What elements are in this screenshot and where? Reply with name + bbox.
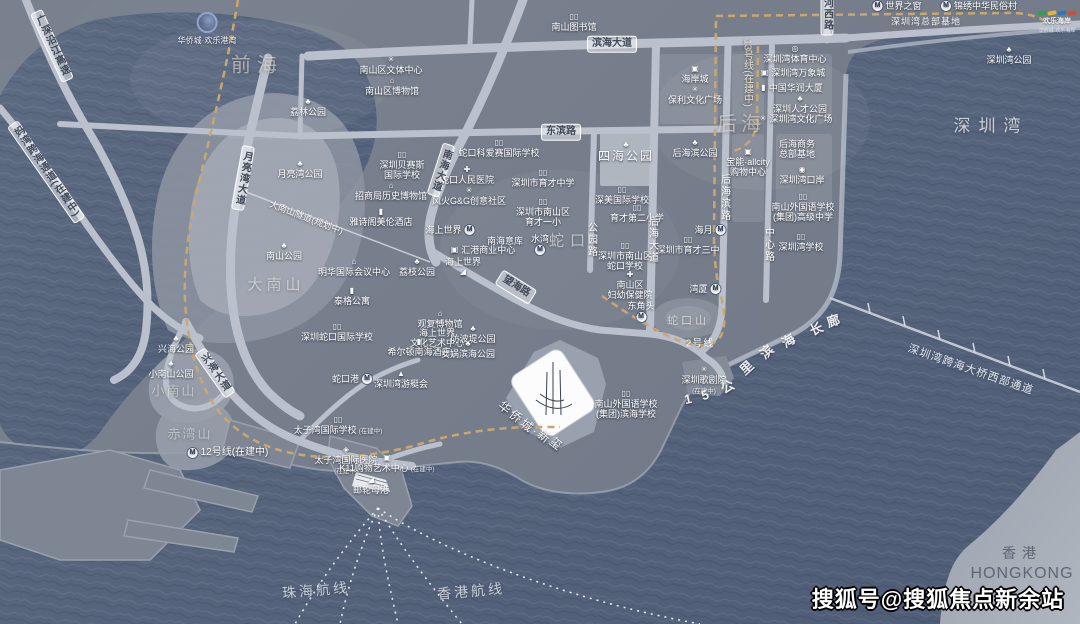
poi-text: 深圳人才公园 [773, 104, 827, 114]
school-icon: ▯▯ [334, 416, 343, 424]
map-poi: ✚南山区妇幼保健院 [607, 271, 652, 301]
oct-harbour-title: 欢乐海岸 [1043, 16, 1071, 26]
area-label: 蛇口 [549, 230, 591, 251]
museum-icon: ⌂ [438, 310, 443, 318]
poi-text: 汇港商业中心 [461, 245, 515, 255]
map-poi: ▯▯南山图书馆 [551, 13, 596, 32]
poi-text: 南山外国语学校(集团)滨海学校 [594, 399, 657, 420]
map-poi: ▯▯深圳市南山区育才一小 [516, 198, 570, 228]
promenade-label-char: 滨 [755, 340, 777, 363]
tower-icon: ▮ [761, 84, 765, 92]
wave-stroke [1047, 10, 1057, 16]
map-poi: ♣四海公园 [598, 141, 654, 164]
poi-text: 女娲滨海公园 [441, 349, 495, 359]
map-poi: ▮中国华润大厦 [761, 83, 822, 93]
map-poi: ▯▯蛇口科爱赛国际学校 [458, 139, 539, 158]
mall-icon: ▣ [744, 148, 752, 156]
map-poi: ▯▯深圳蛇口国际学校 [301, 323, 373, 342]
poi-text: 蛇口科爱赛国际学校 [458, 148, 539, 158]
area-label: 深圳湾跨海大桥西部通道 [906, 340, 1036, 398]
street-label: 13号线(在建中) [740, 39, 755, 107]
poi-text: 蛇口人民医院 [440, 175, 494, 185]
tree-icon: ♣ [173, 335, 178, 343]
promenade-label-char: 里 [735, 356, 757, 379]
map-poi: 海上世界◢ [445, 257, 481, 276]
area-label: 珠海航线 [281, 577, 350, 603]
oct-harbour-logo: 欢乐海岸 华侨城·欢乐海岸 [1038, 11, 1077, 34]
poi-text: 邮轮母港 [353, 485, 389, 495]
map-poi: ▯▯深圳湾学校 [778, 233, 823, 252]
map-poi: ▯▯深圳市育才中学 [511, 169, 574, 188]
poi-text: 南山公园 [266, 251, 302, 261]
map-poi: ▮雅诗阁美伦酒店 [349, 208, 412, 227]
tree-icon: ♣ [414, 258, 419, 266]
map-poi: ▣宝能·allcity购物中心 [726, 148, 770, 178]
tree-icon: ♣ [281, 242, 286, 250]
poi-text: 蛇口港 [332, 374, 359, 384]
poi-text: 深圳湾文化广场 [769, 114, 832, 124]
mall-icon: ▣ [691, 65, 699, 73]
tree-icon: ♣ [797, 95, 802, 103]
poi-text: 深圳市南山区育才一小 [516, 207, 570, 228]
area-label: 小南山 [151, 381, 196, 400]
map-poi: 东角头M [627, 301, 654, 322]
map-poi: 海上世界M [425, 225, 474, 235]
tree-icon: ♣ [623, 141, 628, 149]
map-poi: ♣深圳湾公园 [986, 46, 1031, 65]
area-label: 2号线 [686, 335, 715, 350]
poi-text: 招商局历史博物馆 [355, 191, 427, 201]
poi-text: 深圳贝赛斯国际学校 [379, 160, 424, 181]
promenade-label-char: 海 [777, 328, 798, 351]
road-label: 大南山隧道(规划中) [264, 197, 349, 240]
hospital-icon: ✚ [464, 166, 471, 174]
hongkong-label: 香港 HONGKONG [970, 543, 1073, 583]
map-poi: ✳保利文化广场 [668, 86, 722, 105]
map-poi: ◎深圳湾体育中心 [763, 45, 826, 64]
map-poi: ▯▯深圳贝赛斯国际学校 [379, 151, 424, 181]
map-poi: ♣荔枝公园 [399, 258, 435, 277]
poi-text: 南山区文体中心 [359, 65, 422, 75]
map-poi: ⌂明华国际会议中心 [318, 258, 390, 277]
metro-icon: M [465, 225, 475, 235]
map-poi: ▲深圳湾游艇会 [374, 370, 428, 389]
poi-text: 兴海公园 [158, 344, 194, 354]
map-poi: ♣后海滨公园 [672, 139, 717, 158]
street-label: 后海大道 [645, 216, 660, 264]
school-icon: ▯▯ [799, 193, 808, 201]
mall-icon: ▣ [761, 69, 769, 77]
road-label: 月亮湾大道 [231, 145, 255, 211]
map-poi: ▯▯太子湾国际学校(在建中) [294, 416, 383, 435]
school-icon: ▯▯ [633, 204, 642, 212]
happy-harbour-logo-text: 华侨城·欢乐港湾 [178, 35, 237, 46]
map-poi: ✳南山区文体中心 [359, 56, 422, 75]
tree-icon: ♣ [297, 160, 302, 168]
school-icon: ▯▯ [684, 236, 693, 244]
tree-icon: ♣ [1006, 46, 1011, 54]
area-label: 后海 [717, 108, 765, 137]
poi-text: 深圳湾公园 [986, 55, 1031, 65]
gear-icon: ✳ [701, 366, 708, 374]
poi-text: 宝能·allcity购物中心 [726, 157, 770, 178]
area-label: 赤湾山 [167, 424, 212, 443]
tree-icon: ♣ [470, 325, 475, 333]
map-poi: ✳风火G&G创意社区 [432, 187, 506, 206]
poi-text: 荔枝公园 [399, 267, 435, 277]
map-poi: 海月M [694, 225, 725, 235]
map-poi: ⌂招商局历史博物馆 [355, 182, 427, 201]
map-poi: ◢邮轮母港 [353, 476, 389, 495]
school-icon: ▯▯ [495, 139, 504, 147]
gear-icon: ✳ [466, 187, 473, 195]
map-poi: ▣K11购物艺术中心(在建中) [339, 454, 434, 473]
school-icon: ▯▯ [398, 151, 407, 159]
poi-text: 保利文化广场 [668, 95, 722, 105]
museum-icon: ⌂ [389, 182, 394, 190]
poi-text: 南山区妇幼保健院 [607, 280, 652, 301]
port-icon: ◉ [799, 166, 806, 174]
area-label: 深圳湾 [954, 112, 1029, 137]
map-poi: ⌂南山区博物馆 [365, 77, 419, 96]
map-poi: ♣小南山公园 [148, 360, 193, 379]
oct-harbour-subtitle: 华侨城·欢乐海岸 [1039, 27, 1076, 34]
ship-icon: ◢ [460, 268, 466, 276]
school-icon: ▯▯ [539, 198, 548, 206]
museum-icon: ⌂ [390, 77, 395, 85]
ship-icon: ◢ [368, 476, 374, 484]
poi-text: 深圳蛇口国际学校 [301, 332, 373, 342]
map-canvas: 华侨城·欢乐港湾 欢乐海岸 华侨城·欢乐海岸 香港 HONGKONG 搜狐号@搜… [0, 0, 1080, 624]
tree-icon: ♣ [305, 98, 310, 106]
area-label: 大南山 [247, 274, 304, 295]
poi-text: 深圳湾体育中心 [763, 54, 826, 64]
poi-text: 锦绣中华民俗村 [954, 1, 1017, 11]
mall-icon: ▣ [451, 246, 459, 254]
map-poi: ♣南山公园 [266, 242, 302, 261]
metro-icon: M [872, 1, 882, 11]
poi-text: 湾厦 [689, 284, 707, 294]
poi-text: 水湾 [531, 234, 549, 244]
poi-text: 泰格公寓 [334, 296, 370, 306]
school-icon: ▯▯ [333, 323, 342, 331]
road-label: 河西路 [821, 0, 834, 36]
metro-icon: M [362, 374, 372, 384]
map-poi: ◉深圳湾口岸 [779, 166, 824, 185]
poi-text: 雅诗阁美伦酒店 [349, 217, 412, 227]
map-poi: M12号线(在建中) [188, 447, 269, 459]
map-poi: 湾厦M [689, 284, 720, 294]
school-icon: ▯▯ [622, 390, 631, 398]
map-poi: 水湾M [531, 234, 549, 255]
poi-text: 东角头 [627, 301, 654, 311]
map-labels-layer: 华侨城·欢乐港湾 欢乐海岸 华侨城·欢乐海岸 香港 HONGKONG 搜狐号@搜… [0, 0, 1080, 624]
poi-text: 深圳湾万象城 [771, 68, 825, 78]
school-icon: ▯▯ [621, 242, 630, 250]
poi-text: 12号线(在建中) [201, 447, 269, 459]
map-poi: ♣月亮湾公园 [277, 160, 322, 179]
poi-text: 明华国际会议中心 [318, 267, 390, 277]
metro-icon: M [636, 312, 646, 322]
oct-harbour-wave-icon [1038, 11, 1077, 15]
map-poi: ✳深圳湾文化广场 [760, 114, 833, 124]
poi-text: 中国华润大厦 [769, 83, 823, 93]
area-label: 前海 [231, 49, 283, 78]
map-poi: ▣深圳湾万象城 [761, 68, 826, 78]
poi-text: 南山外国语学校(集团)高级中学 [771, 202, 834, 223]
map-poi: ♣兴海公园 [158, 335, 194, 354]
poi-text: 风火G&G创意社区 [432, 196, 506, 206]
tower-icon: ▮ [350, 287, 354, 295]
watermark: 搜狐号@搜狐焦点新余站 [812, 582, 1064, 614]
culture-icon: ✳ [388, 56, 395, 64]
poi-text: 深圳市育才中学 [511, 178, 574, 188]
hongkong-label-cn: 香港 [970, 543, 1073, 563]
road-label: 望海路 [495, 269, 538, 304]
poi-text: 太子湾国际学校(在建中) [294, 425, 383, 435]
poi-text: 海上世界 [425, 225, 461, 235]
map-poi: ▮泰格公寓 [334, 287, 370, 306]
map-poi: ▯▯南山外国语学校(集团)高级中学 [771, 193, 834, 223]
wave-stroke [1057, 10, 1067, 16]
metro-icon: M [711, 284, 721, 294]
museum-icon: ⌂ [352, 258, 357, 266]
hongkong-label-en: HONGKONG [970, 565, 1073, 583]
poi-text: 深圳湾游艇会 [374, 379, 428, 389]
poi-text: 南山区博物馆 [365, 86, 419, 96]
road-label: 妈湾跨海通道(在建中) [7, 120, 85, 224]
tower-icon: ▮ [379, 208, 383, 216]
hospital-icon: ✚ [627, 271, 634, 279]
poi-text: 后海商务总部基地 [779, 139, 815, 160]
diamond-icon: ◈ [343, 446, 349, 454]
tree-icon: ♣ [168, 360, 173, 368]
poi-text: 海月 [694, 225, 712, 235]
poi-text: 海上世界 [445, 257, 481, 267]
map-poi: 后海商务总部基地 [779, 139, 815, 160]
poi-text: 深圳市育才三中 [656, 245, 719, 255]
map-poi: 蛇口港M [332, 374, 372, 384]
map-poi: ▣汇港商业中心 [451, 245, 516, 255]
street-label: 中心路 [761, 227, 776, 263]
promenade-label-char: 廊 [824, 309, 842, 331]
poi-text: 深圳湾口岸 [779, 175, 824, 185]
poi-text: 深圳湾学校 [778, 242, 823, 252]
poi-text: 四海公园 [598, 150, 654, 164]
happy-harbour-logo-icon [196, 12, 217, 33]
road-label: 滨海大道 [587, 36, 637, 53]
poi-text: 月亮湾公园 [277, 169, 322, 179]
wave-stroke [1037, 10, 1047, 16]
map-poi: ♣深圳人才公园 [773, 95, 827, 114]
map-poi: ▣海岸城 [681, 65, 708, 84]
mall-icon: ▣ [383, 454, 391, 462]
book-icon: ▯▯ [570, 13, 579, 21]
map-poi: ♣女娲滨海公园 [441, 340, 495, 359]
gear-icon: ✳ [692, 86, 699, 94]
street-label: 后海滨路 [717, 174, 732, 222]
tower-icon: ▮ [417, 338, 421, 346]
tree-icon: ♣ [692, 139, 697, 147]
metro-icon: M [716, 225, 726, 235]
area-label: 香港航线 [436, 578, 505, 604]
map-poi: M世界之窗 [872, 1, 921, 11]
poi-text: 后海滨公园 [672, 148, 717, 158]
poi-text: 小南山公园 [148, 369, 193, 379]
map-poi: ▯▯深圳市育才三中 [656, 236, 719, 255]
tree-icon: ♣ [465, 340, 470, 348]
happy-harbour-logo: 华侨城·欢乐港湾 [178, 12, 237, 46]
yacht-icon: ▲ [397, 370, 405, 378]
map-poi: ▯▯南山外国语学校(集团)滨海学校 [594, 390, 657, 420]
poi-text: 海岸城 [681, 74, 708, 84]
metro-icon: M [941, 1, 951, 11]
poi-text: K11购物艺术中心(在建中) [339, 463, 434, 473]
school-icon: ▯▯ [539, 169, 548, 177]
map-poi: ♣荔林公园 [290, 98, 326, 117]
road-label: 兴海大道 [194, 347, 236, 399]
promenade-label-char: 长 [806, 317, 826, 340]
school-icon: ▯▯ [618, 186, 627, 194]
school-icon: ▯▯ [797, 233, 806, 241]
wave-stroke [1067, 10, 1077, 16]
area-label: 蛇口山 [667, 312, 709, 328]
gear-icon: ✳ [434, 319, 441, 327]
poi-text: 南山图书馆 [551, 22, 596, 32]
map-poi: M锦绣中华民俗村 [941, 1, 1017, 11]
poi-text: 荔林公园 [290, 107, 326, 117]
road-label: 东滨路 [541, 124, 581, 141]
road-label: 广深沿江高速 [30, 9, 74, 83]
metro-icon: M [535, 245, 545, 255]
stadium-icon: ◎ [792, 45, 799, 53]
area-label: 深圳湾总部基地 [891, 15, 961, 28]
poi-text: 世界之窗 [885, 1, 921, 11]
metro-icon: M [188, 448, 198, 458]
